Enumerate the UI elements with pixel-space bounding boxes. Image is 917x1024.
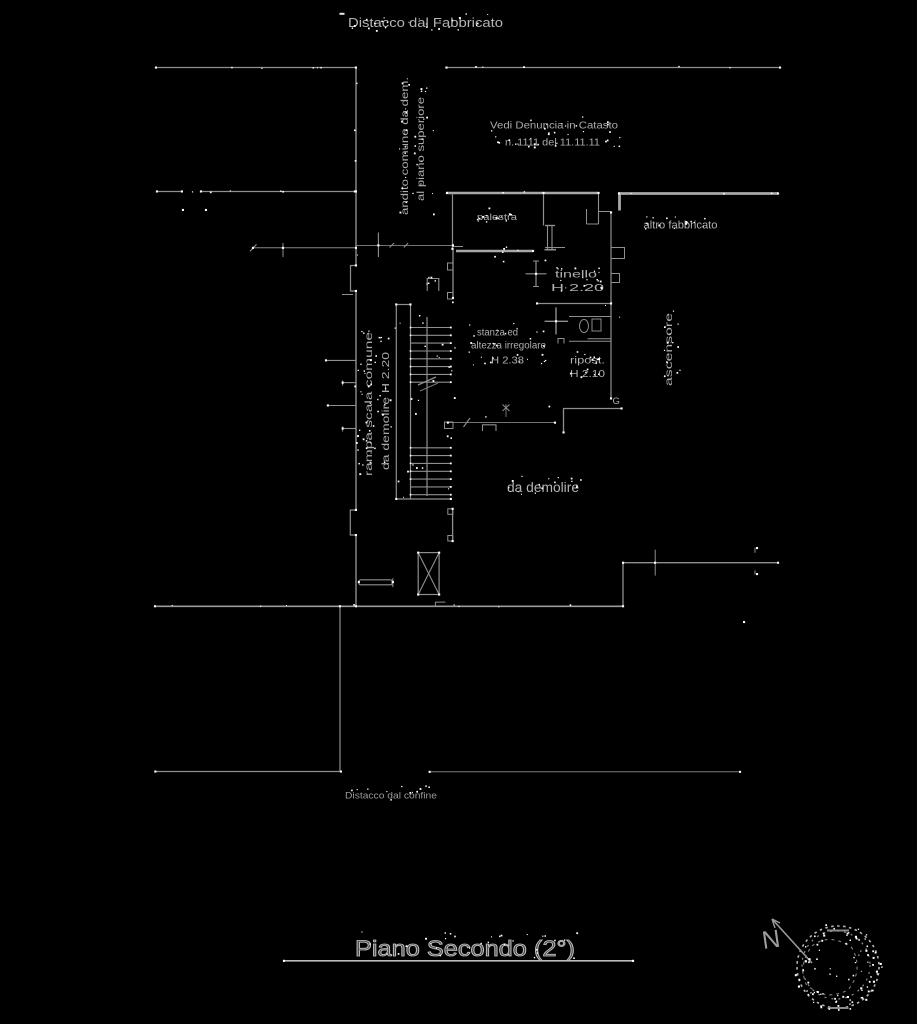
svg-text:altezza irregolare: altezza irregolare bbox=[471, 341, 546, 352]
svg-text:altro fabbricato: altro fabbricato bbox=[644, 220, 718, 232]
svg-text:al piano superiore: al piano superiore bbox=[416, 96, 427, 201]
svg-text:rampa scala comune: rampa scala comune bbox=[364, 331, 375, 476]
svg-text:N: N bbox=[760, 925, 782, 955]
svg-text:H 2.20: H 2.20 bbox=[551, 282, 604, 294]
svg-text:tinello: tinello bbox=[555, 270, 598, 281]
svg-text:ripost.: ripost. bbox=[570, 356, 605, 367]
svg-text:Distacco dal Fabbricato: Distacco dal Fabbricato bbox=[348, 15, 503, 30]
svg-text:n. 1111 del 11.11.11: n. 1111 del 11.11.11 bbox=[505, 138, 600, 149]
svg-text:ascensore: ascensore bbox=[663, 313, 675, 386]
svg-text:Piano Secondo (2°): Piano Secondo (2°) bbox=[355, 936, 575, 961]
svg-text:Vedi Denuncia in Catasto: Vedi Denuncia in Catasto bbox=[490, 121, 618, 132]
svg-text:da demolire H 2.20: da demolire H 2.20 bbox=[381, 351, 392, 470]
svg-text:stanza ed: stanza ed bbox=[477, 328, 518, 339]
svg-text:H 2.38: H 2.38 bbox=[491, 355, 524, 367]
svg-text:G: G bbox=[613, 396, 620, 407]
